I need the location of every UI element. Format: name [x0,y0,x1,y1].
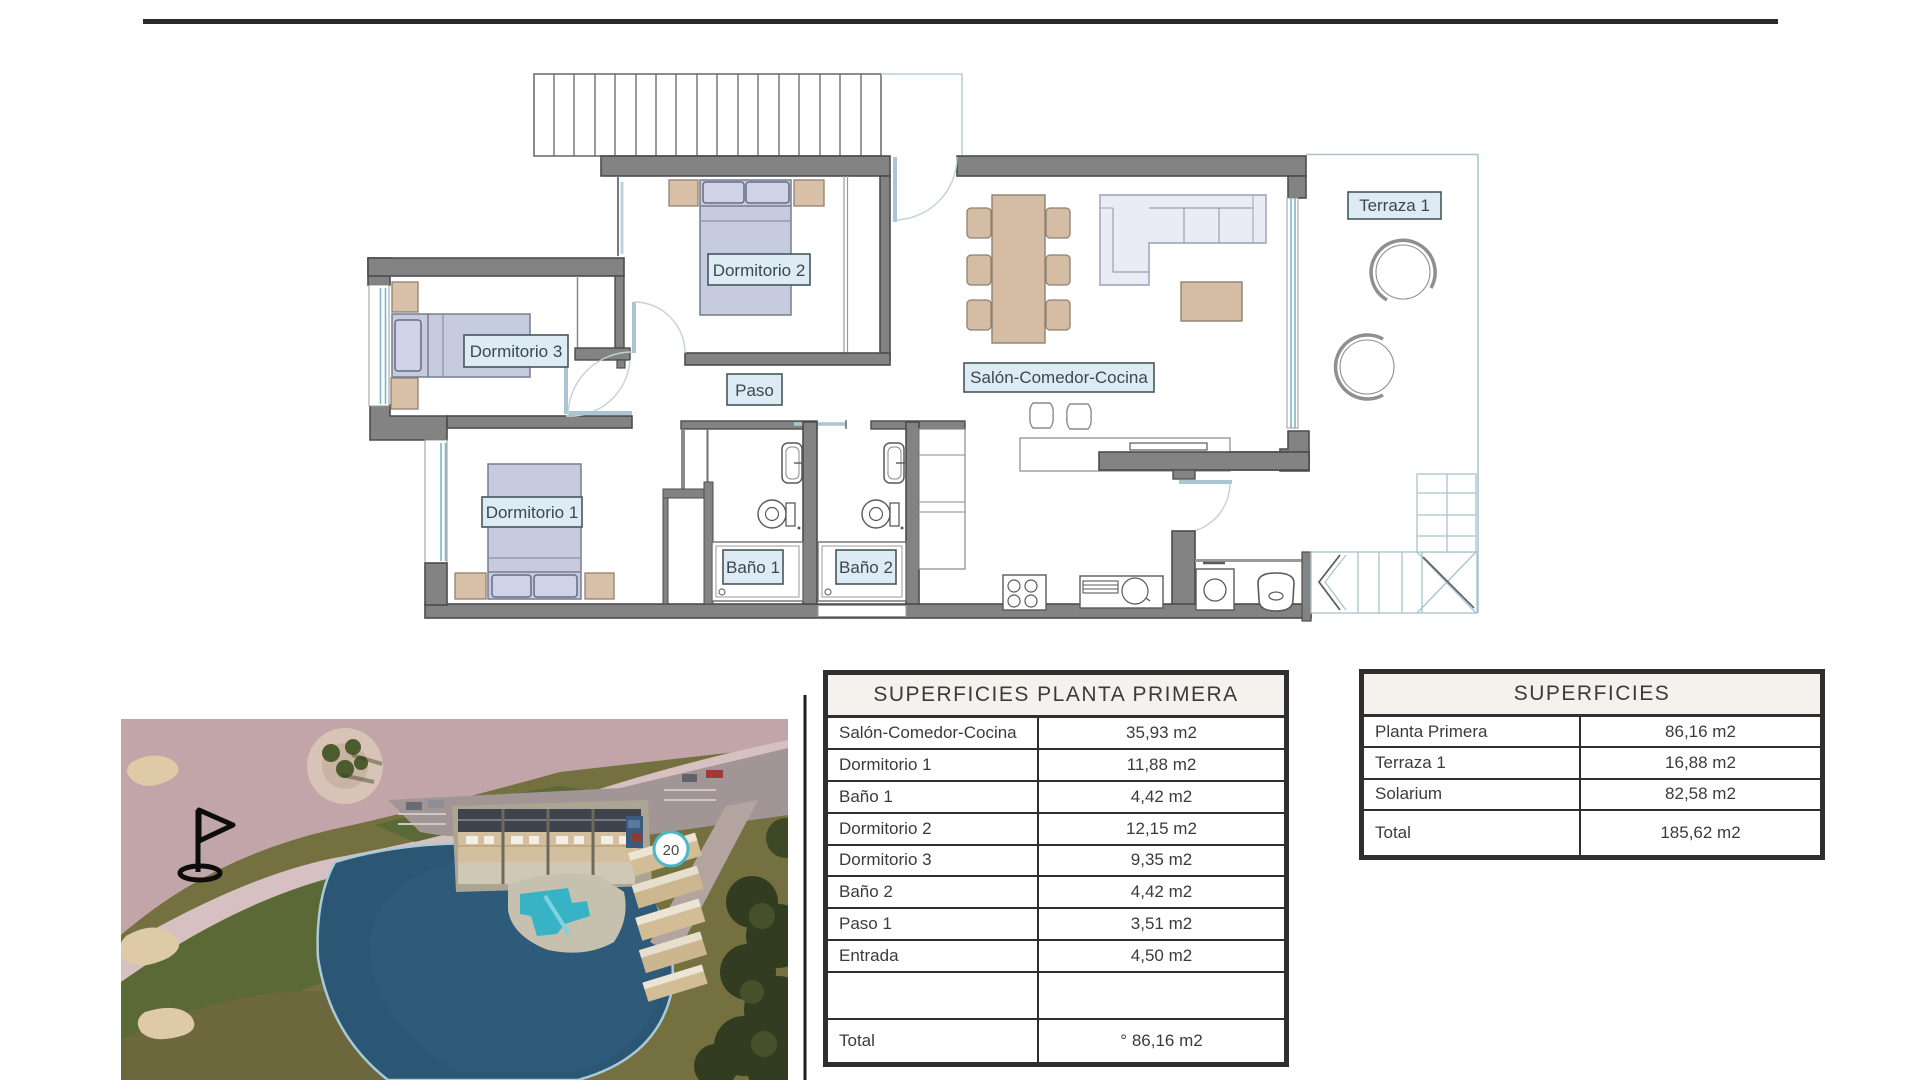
svg-text:Dormitorio 3: Dormitorio 3 [470,342,563,361]
svg-text:Terraza 1: Terraza 1 [1359,196,1430,215]
svg-text:Paso: Paso [735,381,774,400]
svg-text:Dormitorio 1: Dormitorio 1 [486,503,579,522]
svg-text:Baño 1: Baño 1 [726,558,780,577]
svg-text:Salón-Comedor-Cocina: Salón-Comedor-Cocina [970,368,1148,387]
svg-text:Baño 2: Baño 2 [839,558,893,577]
svg-text:Dormitorio 2: Dormitorio 2 [713,261,806,280]
svg-text:20: 20 [663,842,680,859]
